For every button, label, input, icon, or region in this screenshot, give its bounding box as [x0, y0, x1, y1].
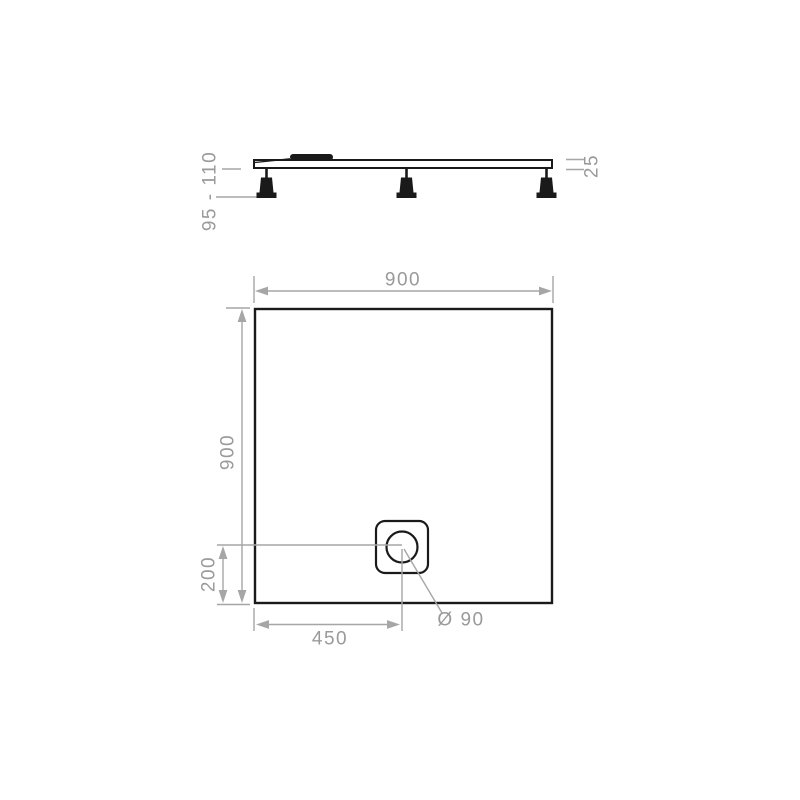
arrow-right — [387, 620, 400, 629]
drawing-linework — [0, 0, 800, 800]
side-elevation-view — [216, 154, 584, 198]
foot-center-base — [397, 193, 417, 199]
tray-profile — [254, 160, 552, 168]
dim-label-foot-height-range: 95 - 110 — [201, 151, 220, 231]
dim-label-drain-offset-left: 450 — [312, 630, 348, 649]
foot-left-body — [260, 178, 274, 193]
dim-label-overall-depth: 900 — [219, 434, 238, 470]
foot-right-stem — [545, 168, 548, 178]
foot-right-body — [540, 178, 554, 193]
foot-center — [397, 168, 417, 198]
arrow-down — [219, 590, 228, 603]
arrow-left — [255, 287, 268, 296]
arrow-down — [238, 590, 247, 603]
arrow-right — [539, 287, 552, 296]
foot-left-base — [257, 193, 277, 199]
arrow-up — [219, 546, 228, 559]
plan-view — [255, 309, 552, 603]
dim-label-drain-offset-bottom: 200 — [200, 556, 219, 592]
waste-outlet-profile — [290, 154, 333, 160]
foot-right-base — [537, 193, 557, 199]
dim-label-drain-diameter: Ø 90 — [437, 611, 484, 630]
dim-label-overall-width: 900 — [385, 271, 421, 290]
dim-label-tray-thickness: 25 — [583, 154, 602, 178]
arrow-up — [238, 309, 247, 322]
foot-left-stem — [265, 168, 268, 178]
foot-right — [537, 168, 557, 198]
foot-center-stem — [405, 168, 408, 178]
foot-left — [257, 168, 277, 198]
arrow-left — [256, 620, 269, 629]
foot-center-body — [400, 178, 414, 193]
technical-drawing-canvas: 95 - 110 25 900 900 200 450 Ø 90 — [0, 0, 800, 800]
